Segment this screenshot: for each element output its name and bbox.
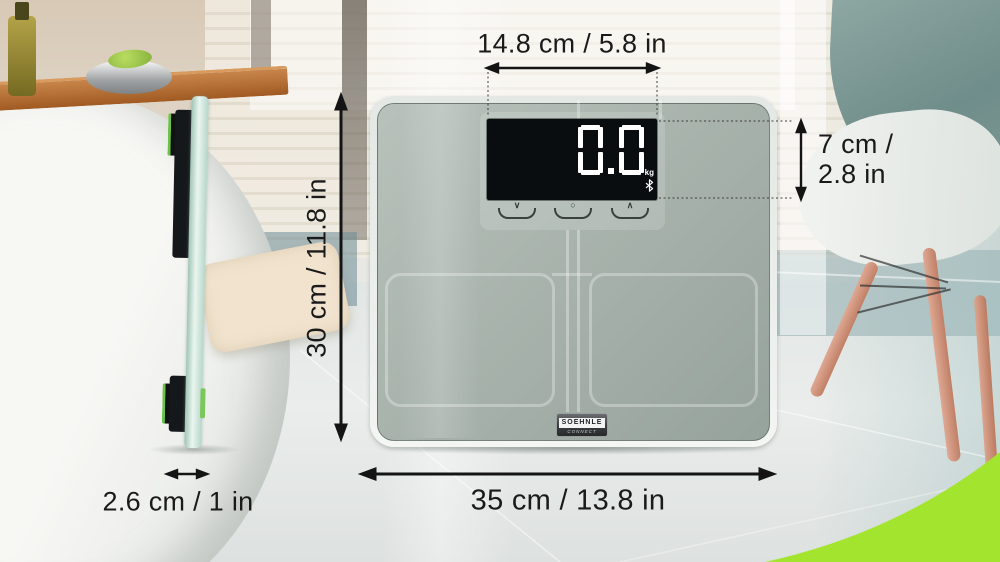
oil-bottle — [8, 16, 36, 96]
electrode-zone-right — [589, 273, 758, 407]
scale-width-label: 35 cm / 13.8 in — [471, 485, 666, 518]
electrode-zone-left — [385, 273, 555, 407]
display-button-set: ○ — [552, 202, 594, 219]
display-button-up: ∧ — [609, 202, 651, 219]
scale-front-view: kg ∨ ○ ∧ SOEHNLE CONNECT — [370, 96, 777, 447]
display-height-line1: 7 cm / — [818, 129, 893, 159]
display-weight-value — [578, 125, 644, 175]
brand-subtitle: CONNECT — [557, 429, 607, 434]
scale-depth-label: 2.6 cm / 1 in — [103, 487, 254, 518]
button-outline — [498, 208, 536, 219]
brand-badge: SOEHNLE CONNECT — [556, 413, 608, 437]
display-width-label: 14.8 cm / 5.8 in — [477, 29, 666, 60]
electrode-line — [552, 273, 592, 276]
brand-name: SOEHNLE — [559, 418, 605, 428]
window-frame-post-right — [342, 0, 367, 240]
scale-height-label: 30 cm / 11.8 in — [302, 178, 333, 358]
electrode-line — [566, 230, 569, 412]
product-dimension-diagram: kg ∨ ○ ∧ SOEHNLE CONNECT — [0, 0, 1000, 562]
display-height-label: 7 cm / 2.8 in — [818, 129, 893, 189]
scale-side-view — [156, 91, 224, 454]
button-outline — [554, 208, 592, 219]
scale-display: kg — [487, 119, 657, 200]
scale-side-green-accent — [200, 388, 206, 418]
display-button-down: ∨ — [496, 202, 538, 219]
electrode-line — [577, 230, 580, 412]
button-outline — [611, 208, 649, 219]
bluetooth-icon — [645, 179, 654, 192]
display-unit-label: kg — [645, 168, 654, 177]
oil-bottle-neck — [15, 2, 29, 20]
display-height-line2: 2.8 in — [818, 159, 893, 189]
